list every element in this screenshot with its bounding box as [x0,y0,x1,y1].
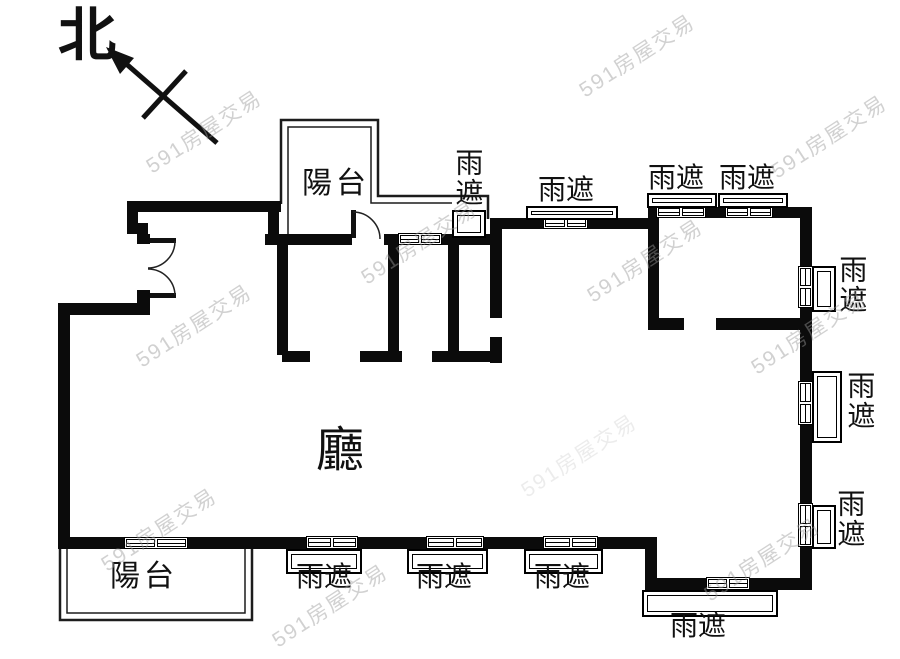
canopy-label: 雨遮 [534,563,590,592]
wall-room-v3 [448,245,459,355]
canopy-box [718,193,788,208]
window [306,536,358,549]
sliding-door [124,537,188,549]
canopy-box [526,206,618,220]
wall-stub-2 [360,351,402,362]
wall-left [58,303,70,549]
canopy-label: 雨遮 [296,563,352,592]
canopy-label: 雨遮 [648,164,704,193]
window [798,503,813,547]
wall-left-step [127,223,148,234]
floor-plan: 北 廳 陽台 陽台 雨遮 雨遮 雨遮 雨遮 雨遮 雨遮 雨遮 雨遮 雨遮 雨遮 … [0,0,900,659]
wall-room-ne-bottom-a [648,318,684,330]
wall-balcony-connector [268,201,279,245]
window [706,577,750,590]
wall-mid-v-lower [490,337,502,363]
wall-entry-bottom [58,303,150,315]
canopy-label: 雨遮 [452,148,481,208]
window [543,536,598,549]
canopy-box [452,210,486,238]
door-jamb-top [137,234,150,244]
door-jamb-bottom [137,290,150,303]
canopy-box [812,505,836,549]
canopy-label: 雨遮 [538,176,594,205]
canopy-box [647,193,717,208]
watermark: 591房屋交易 [515,406,643,504]
wall-room-v1 [277,245,288,355]
window [798,266,813,308]
canopy-label: 雨遮 [416,563,472,592]
hall-label: 廳 [316,426,364,476]
watermark: 591房屋交易 [765,87,893,185]
watermark: 591房屋交易 [140,82,268,180]
canopy-box [812,371,842,443]
canopy-label: 雨遮 [719,164,775,193]
canopy-box [812,266,836,312]
balcony-bottom-label: 陽台 [110,561,178,593]
balcony-top-label: 陽台 [302,168,370,200]
north-label: 北 [58,6,116,67]
wall-bottom-left [58,537,132,549]
canopy-label: 雨遮 [844,371,873,431]
watermark: 591房屋交易 [573,6,701,104]
wall-room-ne-bottom-b [716,318,812,330]
canopy-label: 雨遮 [836,255,865,315]
window [798,381,813,425]
wall-room-v2 [388,245,399,355]
wall-stub-1 [282,351,310,362]
canopy-label: 雨遮 [834,489,863,549]
canopy-label: 雨遮 [670,612,726,641]
window [398,233,442,245]
balcony-door-icon [351,210,380,239]
north-arrow-icon [106,47,217,143]
window [426,536,484,549]
wall-mid-v-upper [490,245,502,318]
entry-double-door-icon [148,238,176,298]
wall-top-left [127,201,281,212]
